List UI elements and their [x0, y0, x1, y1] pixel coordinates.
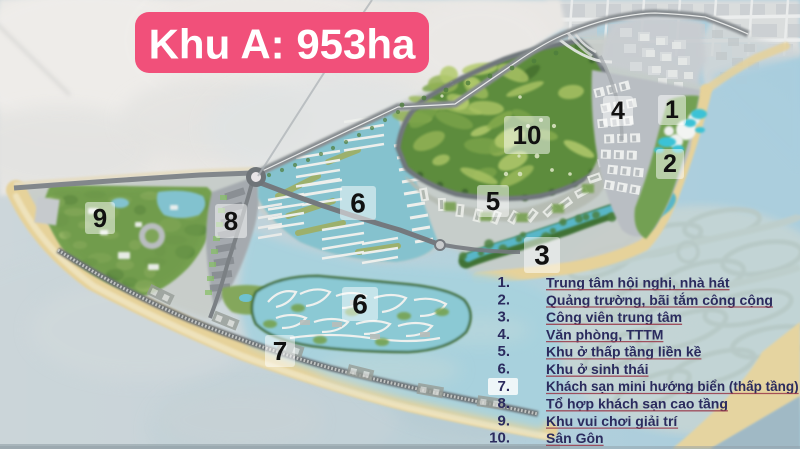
- svg-text:8.: 8.: [497, 395, 510, 412]
- svg-text:5.: 5.: [497, 343, 510, 360]
- svg-text:2: 2: [663, 150, 677, 178]
- svg-text:4.: 4.: [497, 326, 510, 343]
- svg-text:Khu ở sinh thái: Khu ở sinh thái: [546, 361, 649, 377]
- svg-text:Quảng trường, bãi tắm công cộn: Quảng trường, bãi tắm công cộng: [546, 291, 773, 308]
- svg-text:5: 5: [486, 186, 500, 216]
- svg-text:Công viên trung tâm: Công viên trung tâm: [546, 309, 682, 325]
- svg-text:6: 6: [350, 188, 366, 219]
- svg-text:Khu vui chơi giải trí: Khu vui chơi giải trí: [546, 413, 678, 429]
- svg-text:10: 10: [513, 120, 542, 150]
- svg-text:4: 4: [611, 97, 625, 125]
- svg-text:9: 9: [93, 203, 107, 233]
- svg-text:10.: 10.: [489, 430, 510, 447]
- svg-text:9.: 9.: [497, 412, 510, 429]
- svg-text:Tổ hợp khách sạn cao tầng: Tổ hợp khách sạn cao tầng: [546, 396, 728, 412]
- svg-text:Khu A: 953ha: Khu A: 953ha: [149, 21, 416, 68]
- svg-text:Sân Gôn: Sân Gôn: [546, 430, 604, 446]
- svg-text:1: 1: [665, 96, 679, 124]
- svg-text:1.: 1.: [497, 274, 510, 291]
- svg-text:Khách sạn mini hướng biển (thấ: Khách sạn mini hướng biển (thấp tầng): [546, 379, 799, 394]
- svg-text:7: 7: [273, 336, 287, 366]
- svg-text:6.: 6.: [497, 361, 510, 378]
- svg-text:Khu ở thấp tầng liền kề: Khu ở thấp tầng liền kề: [546, 344, 702, 360]
- svg-text:8: 8: [224, 206, 238, 236]
- svg-text:3: 3: [534, 240, 550, 271]
- svg-text:7.: 7.: [497, 378, 510, 395]
- svg-text:Trung tâm hội nghị, nhà hát: Trung tâm hội nghị, nhà hát: [546, 275, 730, 291]
- svg-text:3.: 3.: [497, 309, 510, 326]
- svg-text:6: 6: [352, 289, 368, 320]
- svg-text:Văn phòng, TTTM: Văn phòng, TTTM: [546, 326, 663, 342]
- svg-text:2.: 2.: [497, 291, 510, 308]
